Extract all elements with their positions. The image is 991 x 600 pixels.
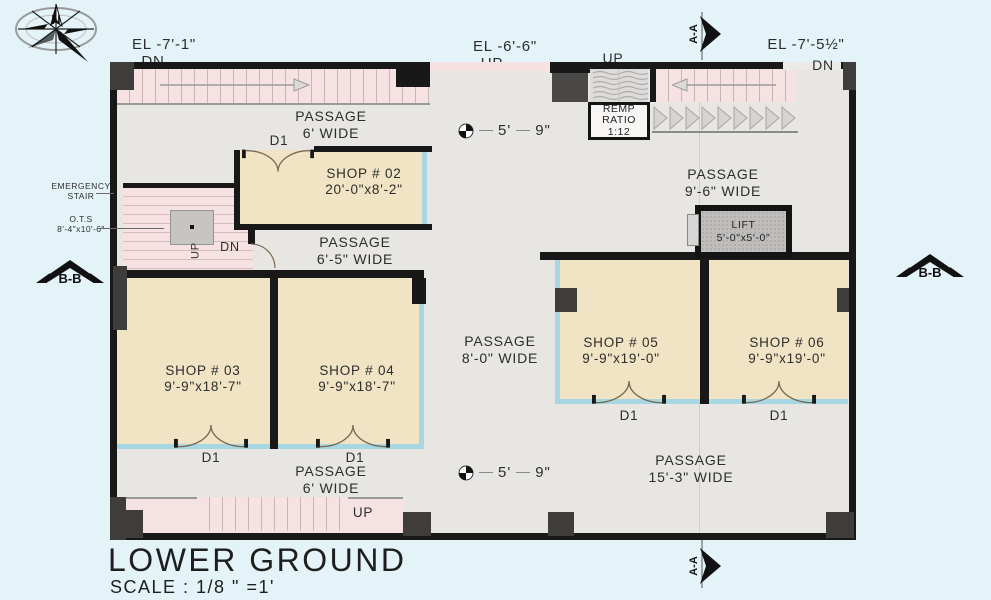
- door-label: D1: [758, 408, 800, 424]
- column: [826, 512, 854, 538]
- compass-icon: N: [12, 2, 104, 64]
- passage-bottom-right-label: PASSAGE 15'-3" WIDE: [625, 452, 757, 486]
- door-shop-03: [174, 423, 248, 449]
- door-shop-06: [742, 379, 816, 405]
- wall: [314, 146, 432, 152]
- emergency-stair-dn-label: DN: [213, 240, 247, 255]
- dim-inches: 9": [535, 122, 551, 139]
- dim-inches: 9": [535, 464, 551, 481]
- wall: [412, 278, 426, 304]
- door-shop-04: [316, 423, 390, 449]
- lift: LIFT 5'-0"x5'-0": [695, 205, 792, 258]
- wall: [650, 62, 656, 102]
- storefront-glass: [555, 260, 560, 404]
- stair-bottom-steps: [197, 497, 348, 531]
- column: [837, 288, 849, 312]
- shop-03-label: SHOP # 03 9'-9"x18'-7": [138, 363, 268, 395]
- room-shop-03: [117, 278, 270, 444]
- ramp-ratio-line3: 1:12: [608, 127, 630, 139]
- entry-landing-top-center: [430, 62, 552, 71]
- section-marker-aa-bottom-icon: A-A: [676, 540, 728, 588]
- section-bb-right-label: B-B: [918, 265, 941, 280]
- page-title: LOWER GROUND: [108, 541, 406, 579]
- benchmark-icon: [458, 123, 474, 139]
- passage-mid-label: PASSAGE 6'-5" WIDE: [292, 234, 418, 268]
- compass-north-label: N: [51, 12, 60, 27]
- section-marker-aa-top-icon: A-A: [676, 12, 728, 60]
- column: [403, 512, 431, 536]
- door-label: D1: [608, 408, 650, 424]
- dim-marker-top: 5' 9": [458, 122, 551, 139]
- wall: [550, 62, 590, 73]
- door-shop-05: [592, 379, 666, 405]
- leader-line: [100, 228, 164, 229]
- elevation-top-right-dir: DN: [800, 57, 846, 74]
- wall: [234, 150, 240, 230]
- passage-top-label: PASSAGE 6' WIDE: [268, 108, 394, 142]
- ramp-waves-icon: [590, 69, 648, 102]
- shop-02-label: SHOP # 02 20'-0"x8'-2": [298, 166, 430, 198]
- wall: [700, 260, 709, 404]
- section-aa-top-label: A-A: [688, 24, 700, 44]
- column: [843, 62, 856, 90]
- elevation-top-right: EL -7'-5½": [755, 36, 857, 54]
- stair-top-right-arrow-icon: [672, 77, 776, 93]
- wall: [270, 278, 278, 449]
- scale-label: SCALE : 1/8 " =1': [110, 577, 275, 599]
- dim-marker-bottom: 5' 9": [458, 464, 551, 481]
- lift-label-line1: LIFT: [732, 219, 756, 232]
- wall: [396, 62, 430, 87]
- shop-05-label: SHOP # 05 9'-9"x19'-0": [556, 335, 686, 367]
- dim-feet: 5': [498, 122, 511, 139]
- ramp-direction-chevrons-icon: [652, 104, 798, 134]
- floor-plan-canvas: N EL -7'-1" DN EL -6'-6" UP EL -7'-5½" U…: [0, 0, 991, 600]
- section-marker-bb-right-icon: B-B: [894, 246, 966, 282]
- shop-06-label: SHOP # 06 9'-9"x19'-0": [722, 335, 852, 367]
- stair-door-swing-icon: [250, 243, 276, 269]
- wall: [234, 224, 432, 230]
- lift-label-line2: 5'-0"x5'-0": [717, 232, 771, 245]
- section-bb-left-label: B-B: [58, 271, 81, 286]
- passage-right-label: PASSAGE 9'-6" WIDE: [660, 166, 786, 200]
- column: [110, 62, 134, 90]
- column: [117, 510, 143, 538]
- lift-door: [687, 214, 699, 246]
- room-shop-04: [278, 278, 419, 444]
- passage-central-label: PASSAGE 8'-0" WIDE: [438, 333, 562, 367]
- shop-04-label: SHOP # 04 9'-9"x18'-7": [292, 363, 422, 395]
- wall: [117, 270, 424, 278]
- ramp-ratio-box: REMP RATIO 1:12: [588, 102, 650, 140]
- elevation-top-left: EL -7'-1": [118, 36, 210, 54]
- ots-center-dot: [190, 225, 194, 229]
- stair-bottom-up-label: UP: [342, 505, 384, 521]
- stair-top-left-arrow-icon: [160, 77, 310, 93]
- passage-bottom-label: PASSAGE 6' WIDE: [268, 463, 394, 497]
- elevation-top-center: EL -6'-6": [450, 38, 560, 56]
- section-marker-bb-left-icon: B-B: [34, 252, 106, 288]
- column: [552, 73, 588, 102]
- leader-line: [96, 193, 114, 194]
- column: [555, 288, 577, 312]
- column: [548, 512, 574, 536]
- column: [113, 266, 127, 330]
- dim-feet: 5': [498, 464, 511, 481]
- emergency-stair-label: EMERGENCY STAIR: [46, 181, 116, 201]
- benchmark-icon: [458, 465, 474, 481]
- ots-label: O.T.S 8'-4"x10'-6": [44, 214, 118, 234]
- section-aa-bottom-label: A-A: [688, 556, 700, 576]
- door-label: D1: [190, 450, 232, 466]
- emergency-stair-up-label: UP: [189, 241, 202, 261]
